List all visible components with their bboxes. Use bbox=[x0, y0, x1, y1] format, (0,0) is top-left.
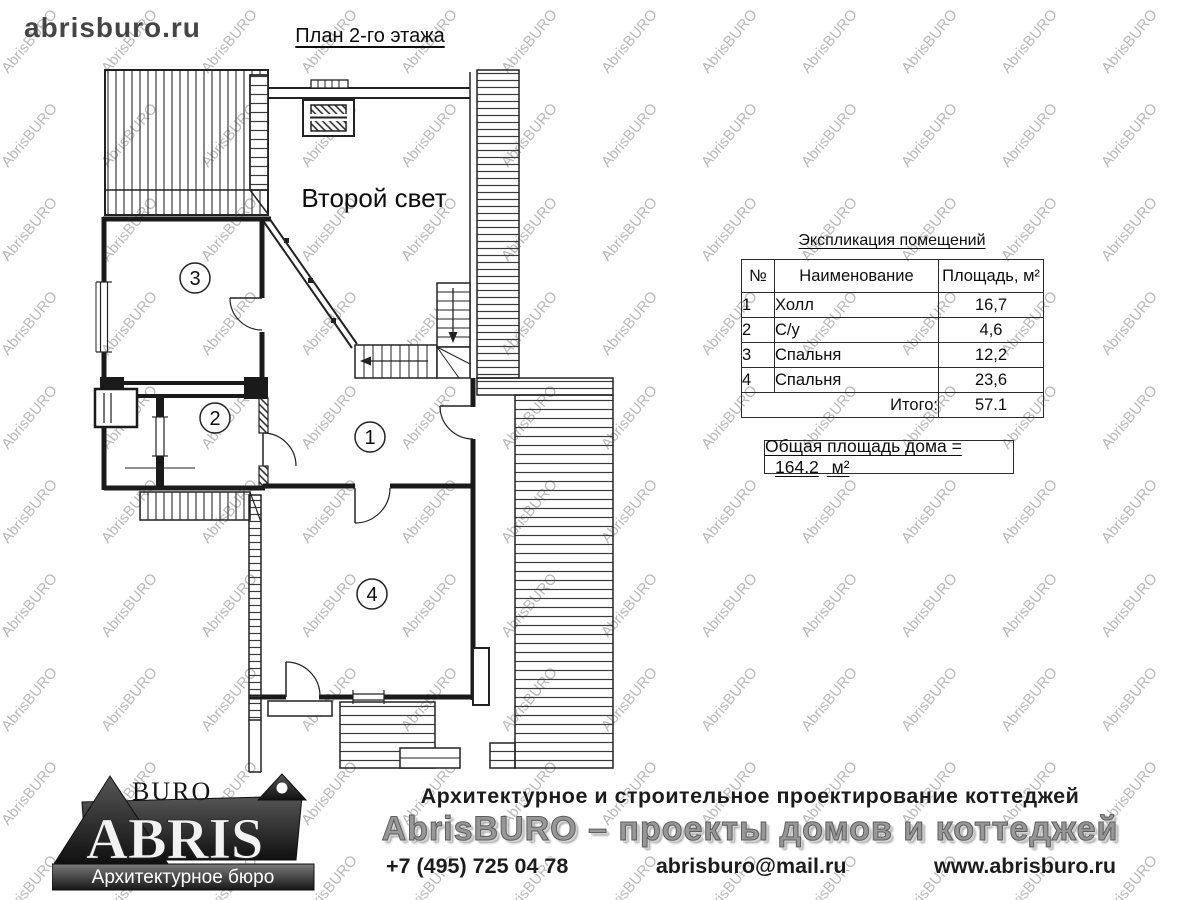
footer: BURO ABRIS Архитектурное бюро Архитектур… bbox=[0, 768, 1200, 900]
svg-text:1: 1 bbox=[364, 427, 375, 449]
total-area-box: Общая площадь дома = 164.2 м² bbox=[764, 440, 1014, 474]
explication-table: № Наименование Площадь, м² 1 Холл 16,7 2… bbox=[741, 259, 1044, 418]
room-number-3: 3 bbox=[180, 263, 210, 293]
table-header-row: № Наименование Площадь, м² bbox=[742, 260, 1044, 293]
cell-num: 1 bbox=[742, 293, 775, 318]
room-number-2: 2 bbox=[200, 403, 230, 433]
roof-beam bbox=[268, 80, 470, 98]
door-balcony-room4 bbox=[268, 662, 332, 716]
footer-website: www.abrisburo.ru bbox=[934, 854, 1116, 879]
balcony-strip bbox=[140, 492, 261, 522]
cell-name: Спальня bbox=[775, 368, 939, 393]
room4-left-wall bbox=[249, 495, 261, 772]
abris-logo: BURO ABRIS Архитектурное бюро bbox=[52, 772, 317, 892]
footer-tagline: Архитектурное и строительное проектирова… bbox=[350, 784, 1150, 809]
vent bbox=[311, 80, 348, 88]
second-light-label: Второй свет bbox=[301, 183, 446, 213]
footer-brand-line: AbrisBURO – проекты домов и коттеджей bbox=[350, 810, 1150, 849]
diagonal-glazed-wall bbox=[264, 218, 357, 348]
door-hall-room4 bbox=[355, 488, 390, 523]
header-area: Площадь, м² bbox=[939, 260, 1044, 293]
facade-stub bbox=[95, 389, 137, 427]
cell-name: Холл bbox=[775, 293, 939, 318]
door-hall-stairs bbox=[440, 406, 473, 439]
cell-area: 16,7 bbox=[939, 293, 1044, 318]
roof-top-left bbox=[105, 70, 268, 215]
footer-contacts: +7 (495) 725 04 78 abrisburo@mail.ru www… bbox=[350, 854, 1150, 879]
logo-roof-dot bbox=[277, 783, 288, 794]
explication-block: Экспликация помещений № Наименование Пло… bbox=[741, 232, 1043, 418]
svg-text:3: 3 bbox=[189, 268, 200, 290]
cell-area: 4,6 bbox=[939, 318, 1044, 343]
total-area-unit: м² bbox=[832, 457, 850, 477]
room-number-4: 4 bbox=[357, 579, 387, 609]
cell-num: 4 bbox=[742, 368, 775, 393]
cell-num: 2 bbox=[742, 318, 775, 343]
total-area-value: 164.2 bbox=[775, 457, 819, 477]
window-room3 bbox=[96, 282, 112, 352]
page: AbrisBURO bbox=[0, 0, 1200, 900]
table-row: 1 Холл 16,7 bbox=[742, 293, 1044, 318]
footer-text: Архитектурное и строительное проектирова… bbox=[350, 784, 1150, 879]
explication-title: Экспликация помещений bbox=[741, 232, 1043, 250]
table-row: 4 Спальня 23,6 bbox=[742, 368, 1044, 393]
cell-area: 12,2 bbox=[939, 343, 1044, 368]
total-label: Итого: bbox=[742, 393, 939, 418]
window-room2 bbox=[152, 417, 168, 456]
logo-main-text: ABRIS bbox=[86, 806, 263, 871]
cell-num: 3 bbox=[742, 343, 775, 368]
staircase bbox=[355, 283, 470, 378]
room-number-1: 1 bbox=[355, 422, 385, 452]
total-area-label: Общая площадь дома = bbox=[765, 436, 962, 456]
header-name: Наименование bbox=[775, 260, 939, 293]
total-value: 57.1 bbox=[939, 393, 1044, 418]
svg-text:2: 2 bbox=[209, 408, 220, 430]
door-room2 bbox=[263, 433, 296, 466]
logo-sub-text: Архитектурное бюро bbox=[92, 867, 275, 888]
walls bbox=[100, 217, 475, 700]
chimney bbox=[303, 100, 354, 136]
footer-email: abrisburo@mail.ru bbox=[656, 854, 847, 879]
porch bbox=[340, 648, 515, 768]
floor-plan: Второй свет 1 2 3 4 bbox=[0, 0, 1200, 900]
svg-text:4: 4 bbox=[366, 584, 377, 606]
cell-name: Спальня bbox=[775, 343, 939, 368]
table-row: 2 С/у 4,6 bbox=[742, 318, 1044, 343]
cell-name: С/у bbox=[775, 318, 939, 343]
pillar bbox=[473, 648, 489, 705]
table-row: 3 Спальня 12,2 bbox=[742, 343, 1044, 368]
site-name: abrisburo.ru bbox=[24, 12, 201, 44]
door-room3 bbox=[230, 298, 262, 330]
cell-area: 23,6 bbox=[939, 368, 1044, 393]
header-num: № bbox=[742, 260, 775, 293]
logo-top-text: BURO bbox=[132, 777, 212, 806]
roof-right bbox=[470, 70, 613, 768]
page-title: План 2-го этажа bbox=[250, 25, 490, 48]
table-total-row: Итого: 57.1 bbox=[742, 393, 1044, 418]
threshold bbox=[268, 701, 332, 716]
footer-phone: +7 (495) 725 04 78 bbox=[386, 854, 568, 879]
